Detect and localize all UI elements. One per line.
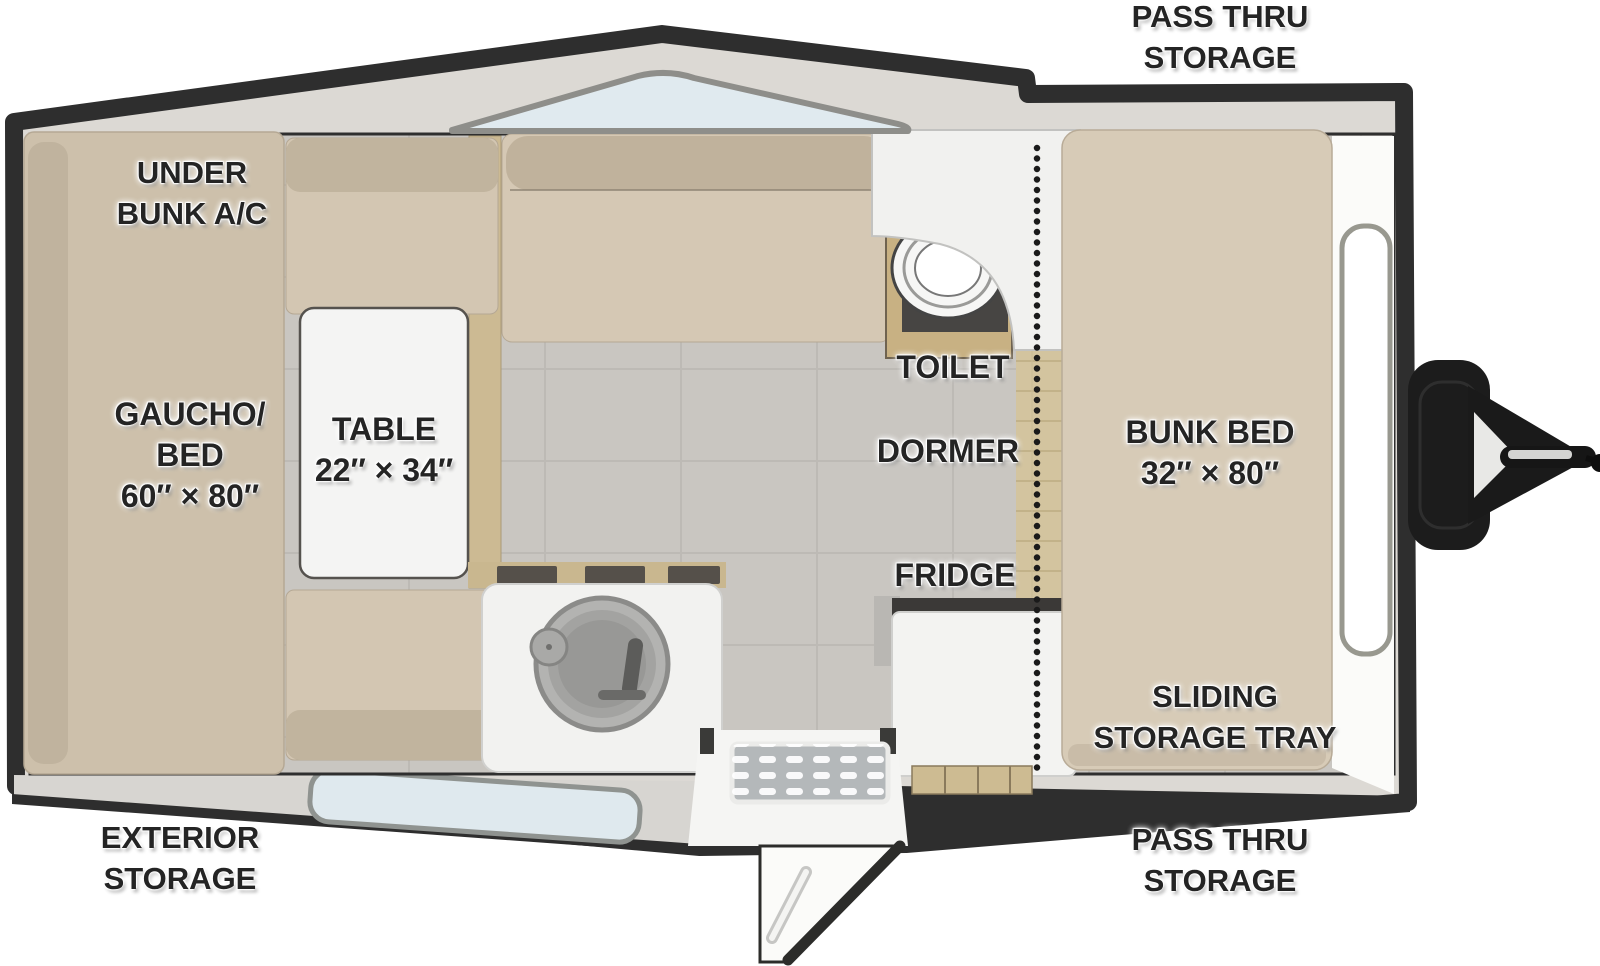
entry-step-strip <box>912 766 1032 794</box>
sofa-bed <box>502 134 890 342</box>
label-under-bunk-ac: UNDER BUNK A/C <box>117 152 267 234</box>
label-dormer: DORMER <box>877 431 1019 472</box>
front-window <box>1342 226 1390 654</box>
toilet-cabinet <box>872 130 1080 358</box>
dinette-bench-top <box>286 138 498 314</box>
label-exterior-storage: EXTERIOR STORAGE <box>101 817 259 899</box>
label-table: TABLE 22″ × 34″ <box>315 409 453 491</box>
label-sliding-storage-tray: SLIDING STORAGE TRAY <box>1094 676 1337 758</box>
entry-door-open <box>760 846 900 962</box>
label-fridge: FRIDGE <box>895 555 1016 596</box>
hitch-assembly <box>1408 360 1600 550</box>
entry-door-opening <box>688 728 908 846</box>
label-bunk-bed: BUNK BED 32″ × 80″ <box>1126 412 1295 494</box>
sink-counter <box>468 562 726 772</box>
label-pass-thru-storage-bottom: PASS THRU STORAGE <box>1132 819 1309 901</box>
label-gaucho-bed: GAUCHO/ BED 60″ × 80″ <box>114 394 265 517</box>
gaucho-bolster <box>28 142 68 764</box>
label-toilet: TOILET <box>896 347 1009 388</box>
front-cap <box>1332 136 1394 794</box>
floorplan-canvas: PASS THRU STORAGE UNDER BUNK A/C GAUCHO/… <box>0 0 1600 966</box>
dinette-bench-bottom <box>286 590 498 760</box>
label-pass-thru-storage-top: PASS THRU STORAGE <box>1132 0 1309 78</box>
fridge <box>874 596 1076 776</box>
